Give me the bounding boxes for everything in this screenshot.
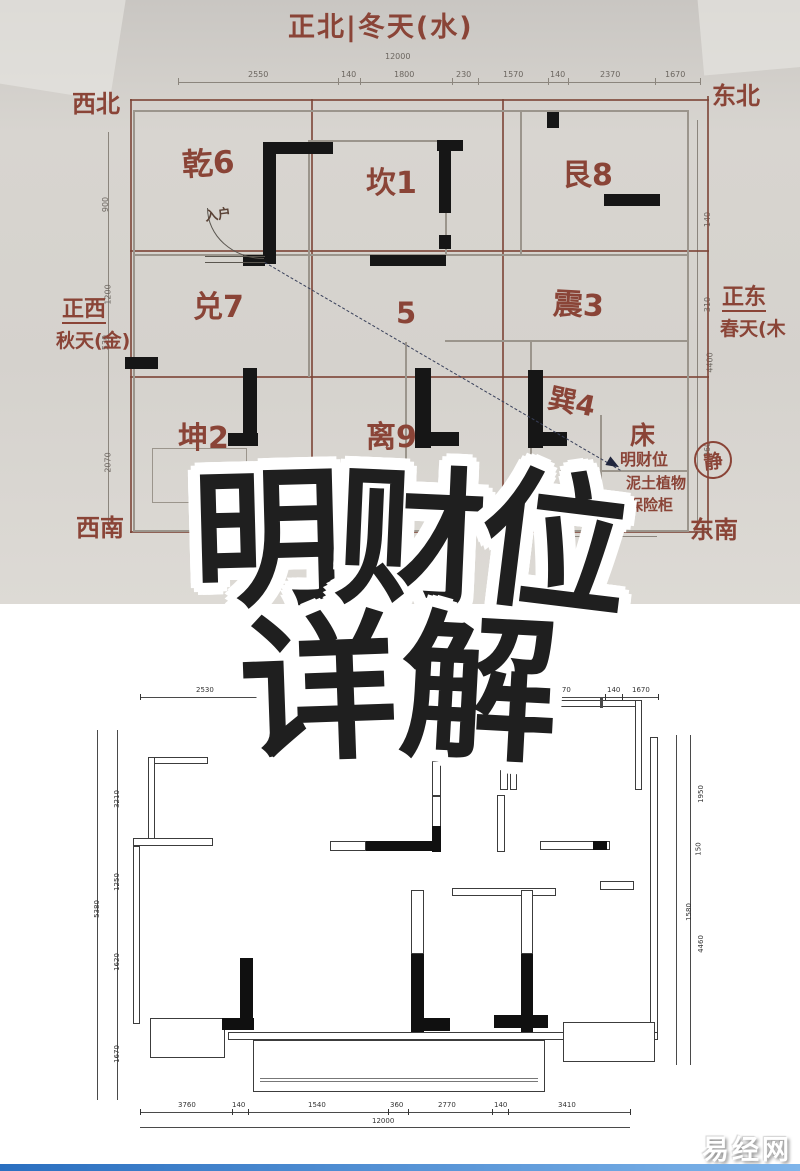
- dim-left-outer: 5380: [93, 900, 101, 918]
- dim-bottom: 140: [494, 1101, 507, 1109]
- bagua-grid-line: [130, 99, 132, 533]
- dim-left: 1250: [113, 873, 121, 891]
- compass-west: 正西: [62, 298, 106, 324]
- dim-top: 2530: [196, 686, 214, 694]
- wall-segment: [222, 1018, 254, 1030]
- bagua-dui7: 兑7: [193, 292, 244, 324]
- wall-segment: [541, 432, 567, 446]
- wall-segment: [125, 357, 158, 369]
- dim-right-inner: 1580: [685, 903, 693, 921]
- dim-bottom: 1540: [308, 1101, 326, 1109]
- dim-top: 1570: [503, 70, 523, 79]
- wall-segment: [439, 151, 451, 213]
- dim-top: 1670: [665, 70, 685, 79]
- dim-right: 1950: [697, 785, 705, 803]
- dim-bottom: 2770: [438, 1101, 456, 1109]
- wall-segment: [424, 1018, 450, 1031]
- bagua-center5: 5: [396, 298, 416, 328]
- bagua-kan1: 坎1: [366, 168, 417, 200]
- jing-seal: 静: [692, 439, 734, 481]
- compass-east: 正东: [722, 286, 766, 312]
- compass-east-season: 春天(木: [720, 320, 786, 340]
- wall-segment: [366, 841, 441, 851]
- compass-title-north: 正北|冬天(水): [288, 14, 474, 42]
- bagua-grid-line: [130, 250, 709, 252]
- overlay-title-line2: 详解: [240, 612, 560, 770]
- wall-segment: [547, 112, 559, 128]
- wall-segment: [437, 140, 463, 151]
- site-watermark: 易经网: [702, 1128, 792, 1167]
- wall-segment: [228, 433, 258, 446]
- bagua-kun2: 坤2: [178, 423, 229, 455]
- dim-left: 2070: [104, 452, 113, 472]
- dim-top: 230: [456, 70, 471, 79]
- dim-line: [178, 82, 700, 83]
- dim-total-top: 12000: [385, 52, 410, 61]
- dim-top: 140: [341, 70, 356, 79]
- compass-sw: 西南: [76, 516, 124, 541]
- wall-segment: [429, 432, 459, 446]
- title-char: 明: [190, 464, 344, 618]
- dim-left: 900: [101, 197, 110, 212]
- compass-nw: 西北: [72, 92, 120, 117]
- overlay-title-line1: 明财位: [192, 466, 624, 616]
- bagua-gen8: 艮8: [562, 160, 613, 192]
- paper-edge: [696, 0, 800, 75]
- title-char: 解: [396, 608, 562, 774]
- wall-segment: [263, 142, 276, 264]
- dim-top: 140: [607, 686, 620, 694]
- wall-segment: [370, 255, 446, 266]
- footer-blue-bar: [0, 1164, 800, 1171]
- dim-right: 4460: [697, 935, 705, 953]
- dim-top: 140: [550, 70, 565, 79]
- wall-segment: [411, 954, 424, 1032]
- seal-text: 静: [702, 446, 724, 475]
- dim-bottom: 3410: [558, 1101, 576, 1109]
- compass-west-season: 秋天(金): [56, 332, 130, 352]
- bed-label: 床: [630, 423, 655, 449]
- wall-segment: [494, 1015, 548, 1028]
- bagua-li9: 离9: [366, 422, 417, 454]
- dim-bottom: 3760: [178, 1101, 196, 1109]
- dim-left: 3210: [113, 790, 121, 808]
- dim-top: 2370: [600, 70, 620, 79]
- paper-edge: [0, 0, 128, 101]
- bagua-xun4: 巽4: [545, 383, 598, 422]
- dim-bottom: 360: [390, 1101, 403, 1109]
- dim-left: 1670: [113, 1045, 121, 1063]
- dim-bottom-total: 12000: [372, 1117, 394, 1125]
- dim-top: 1800: [394, 70, 414, 79]
- wall-segment: [593, 841, 607, 850]
- bagua-zhen3: 震3: [552, 289, 604, 323]
- dim-bottom: 140: [232, 1101, 245, 1109]
- wall-segment: [604, 194, 660, 206]
- title-char: 详: [237, 609, 400, 772]
- dim-left: 1620: [113, 953, 121, 971]
- entry-door-sill: [205, 256, 265, 263]
- compass-ne: 东北: [712, 84, 760, 109]
- bagua-qian6: 乾6: [181, 146, 236, 182]
- wall-segment: [439, 235, 451, 249]
- dim-top: 1670: [632, 686, 650, 694]
- dim-top: 2550: [248, 70, 268, 79]
- bagua-grid-line: [130, 99, 709, 101]
- dim-right: 150: [695, 842, 703, 855]
